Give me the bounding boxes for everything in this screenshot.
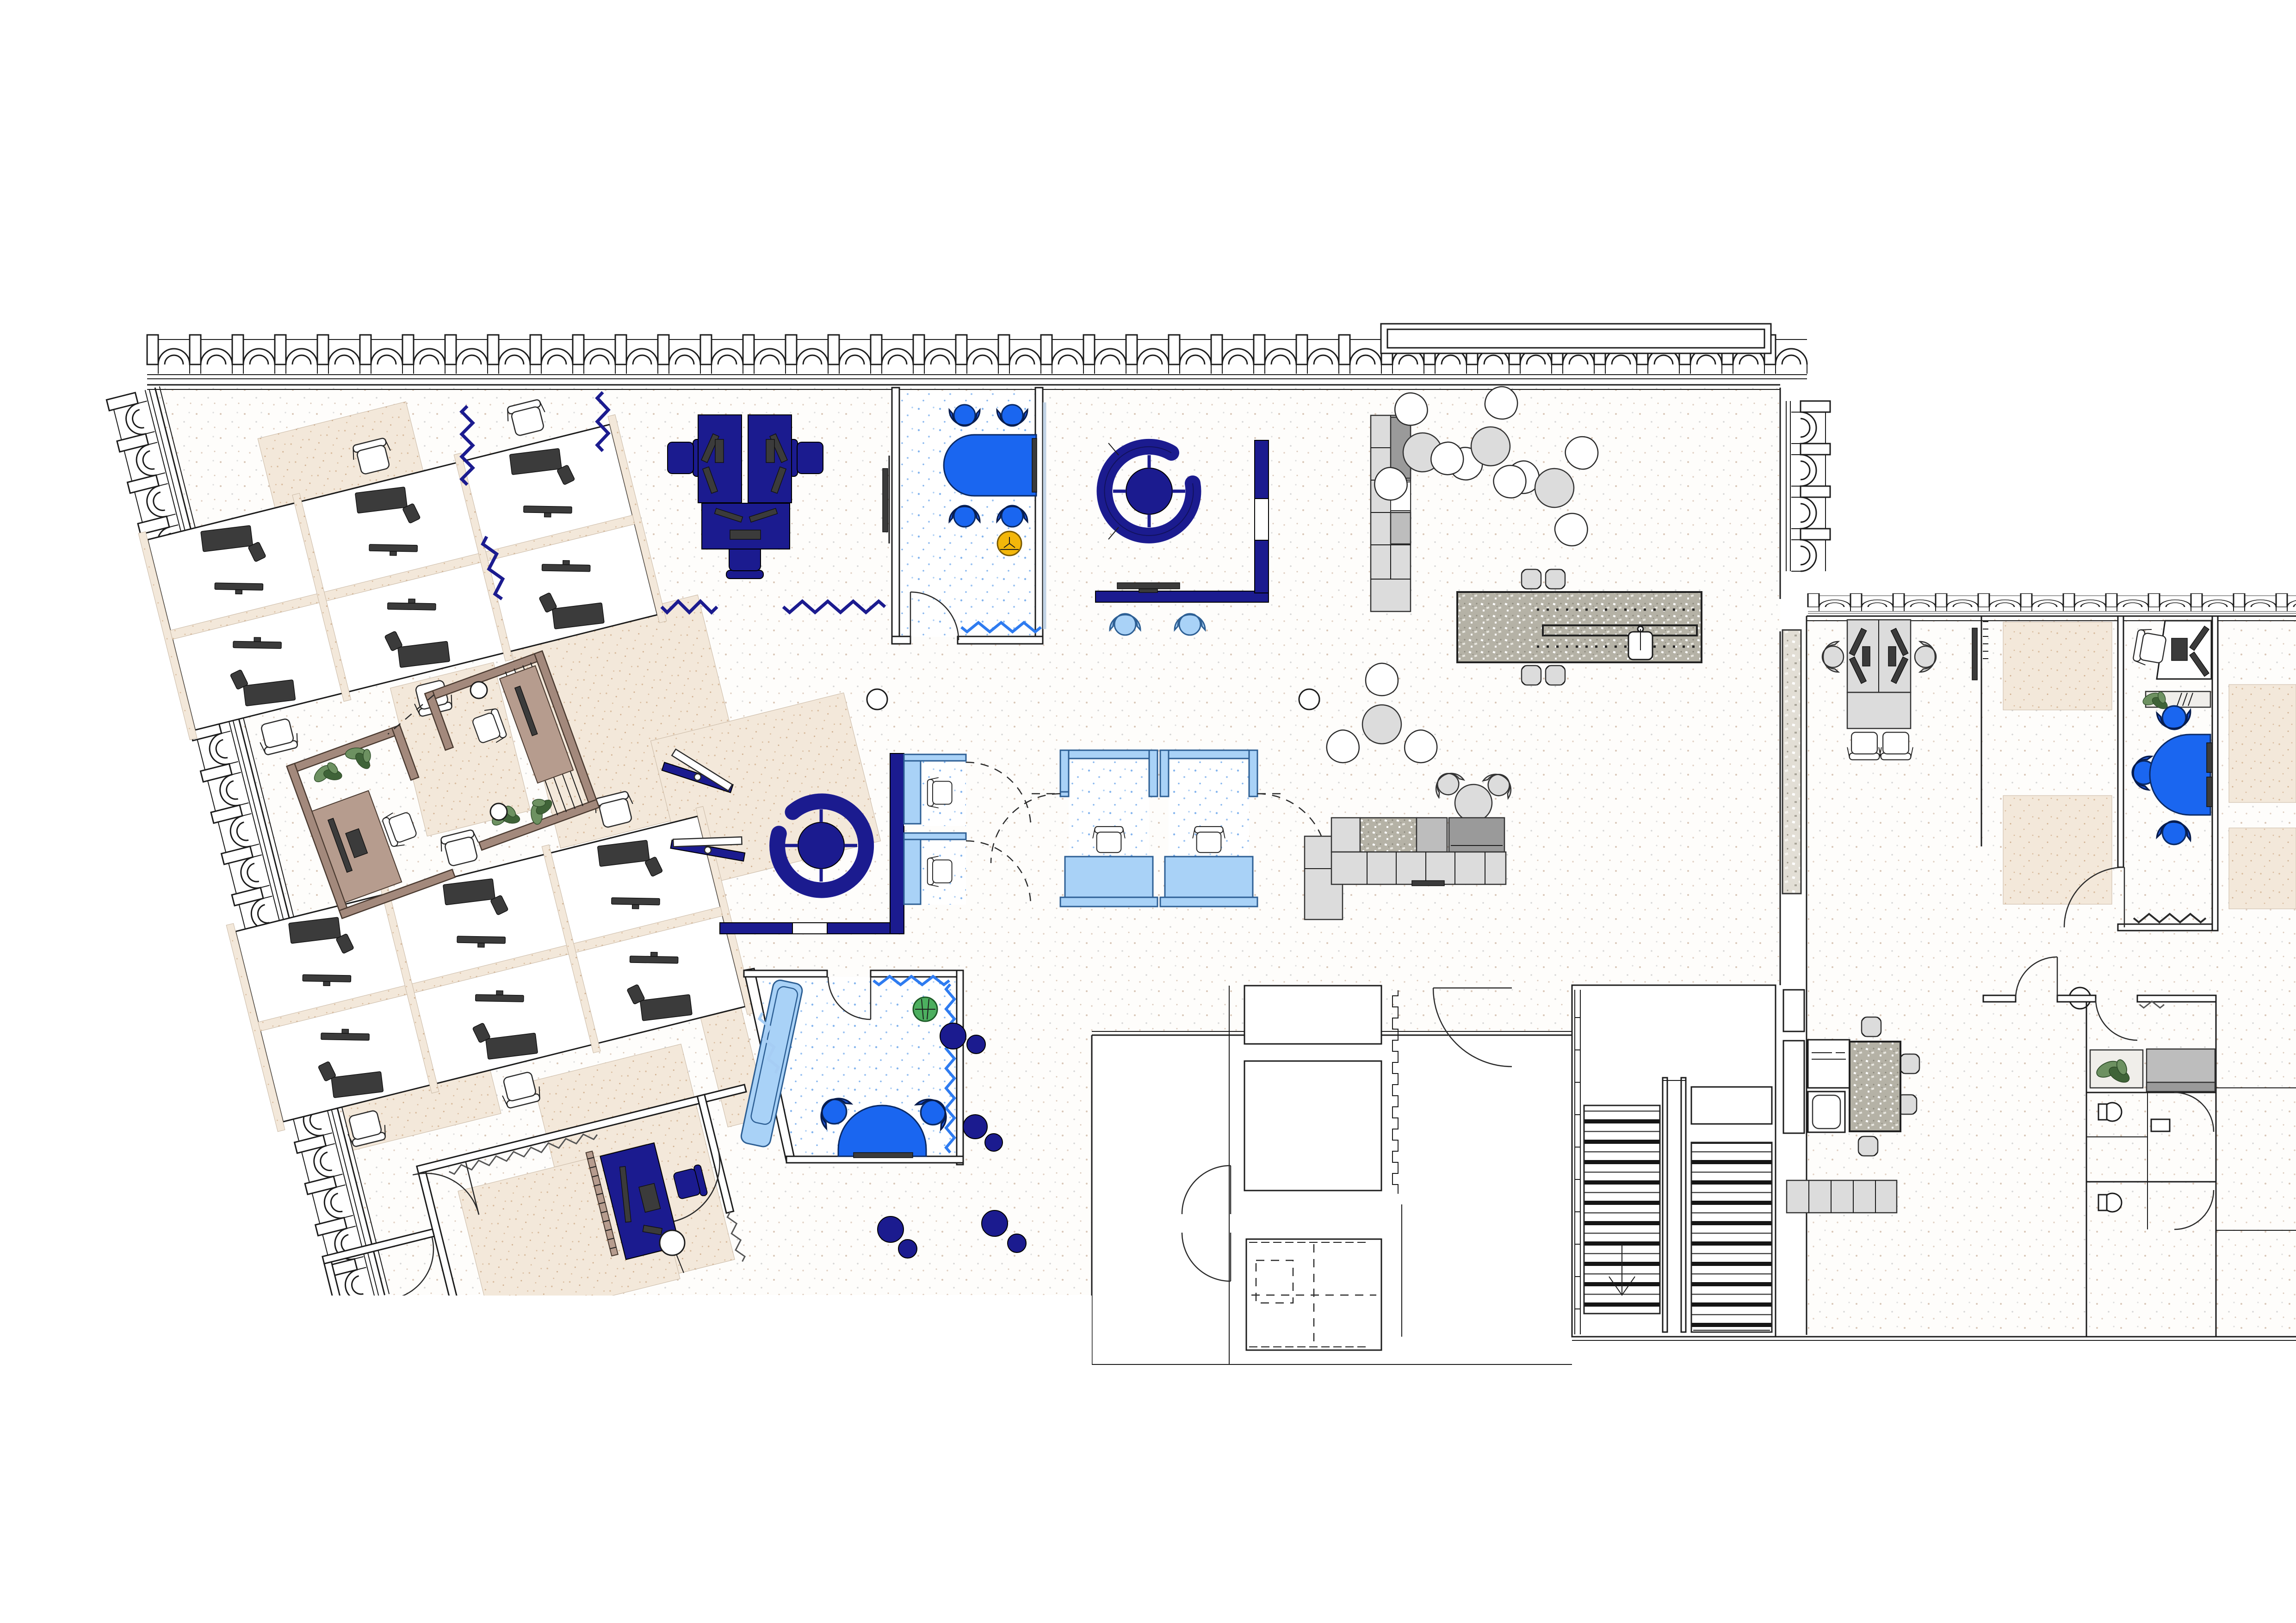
floor-plan-page	[0, 0, 2296, 1623]
meeting-tv	[1032, 438, 1037, 492]
tv-screen	[883, 469, 888, 532]
facade-wing-top	[1807, 593, 2296, 621]
corridor-cabinets	[1783, 990, 1804, 1133]
blue-pill-table	[944, 435, 1036, 496]
granite-high-table	[1850, 1042, 1900, 1131]
floor-plan-drawing	[0, 0, 2296, 1623]
meeting-room-blue-table	[892, 388, 1045, 644]
drawing-cut-bottom-left	[0, 1296, 1092, 1623]
service-core	[1182, 986, 1512, 1364]
drawing-cut-bottom-right	[1777, 1342, 2296, 1623]
bench-row	[1787, 1180, 1897, 1213]
stairwell	[1572, 985, 1776, 1337]
elevator	[1246, 1239, 1381, 1350]
facade-top	[147, 324, 1807, 389]
terrazzo-counter	[1782, 630, 1801, 894]
stair-flight-up	[1691, 1142, 1772, 1332]
round-side-table	[660, 1230, 685, 1255]
wing-tv	[1972, 628, 1977, 680]
